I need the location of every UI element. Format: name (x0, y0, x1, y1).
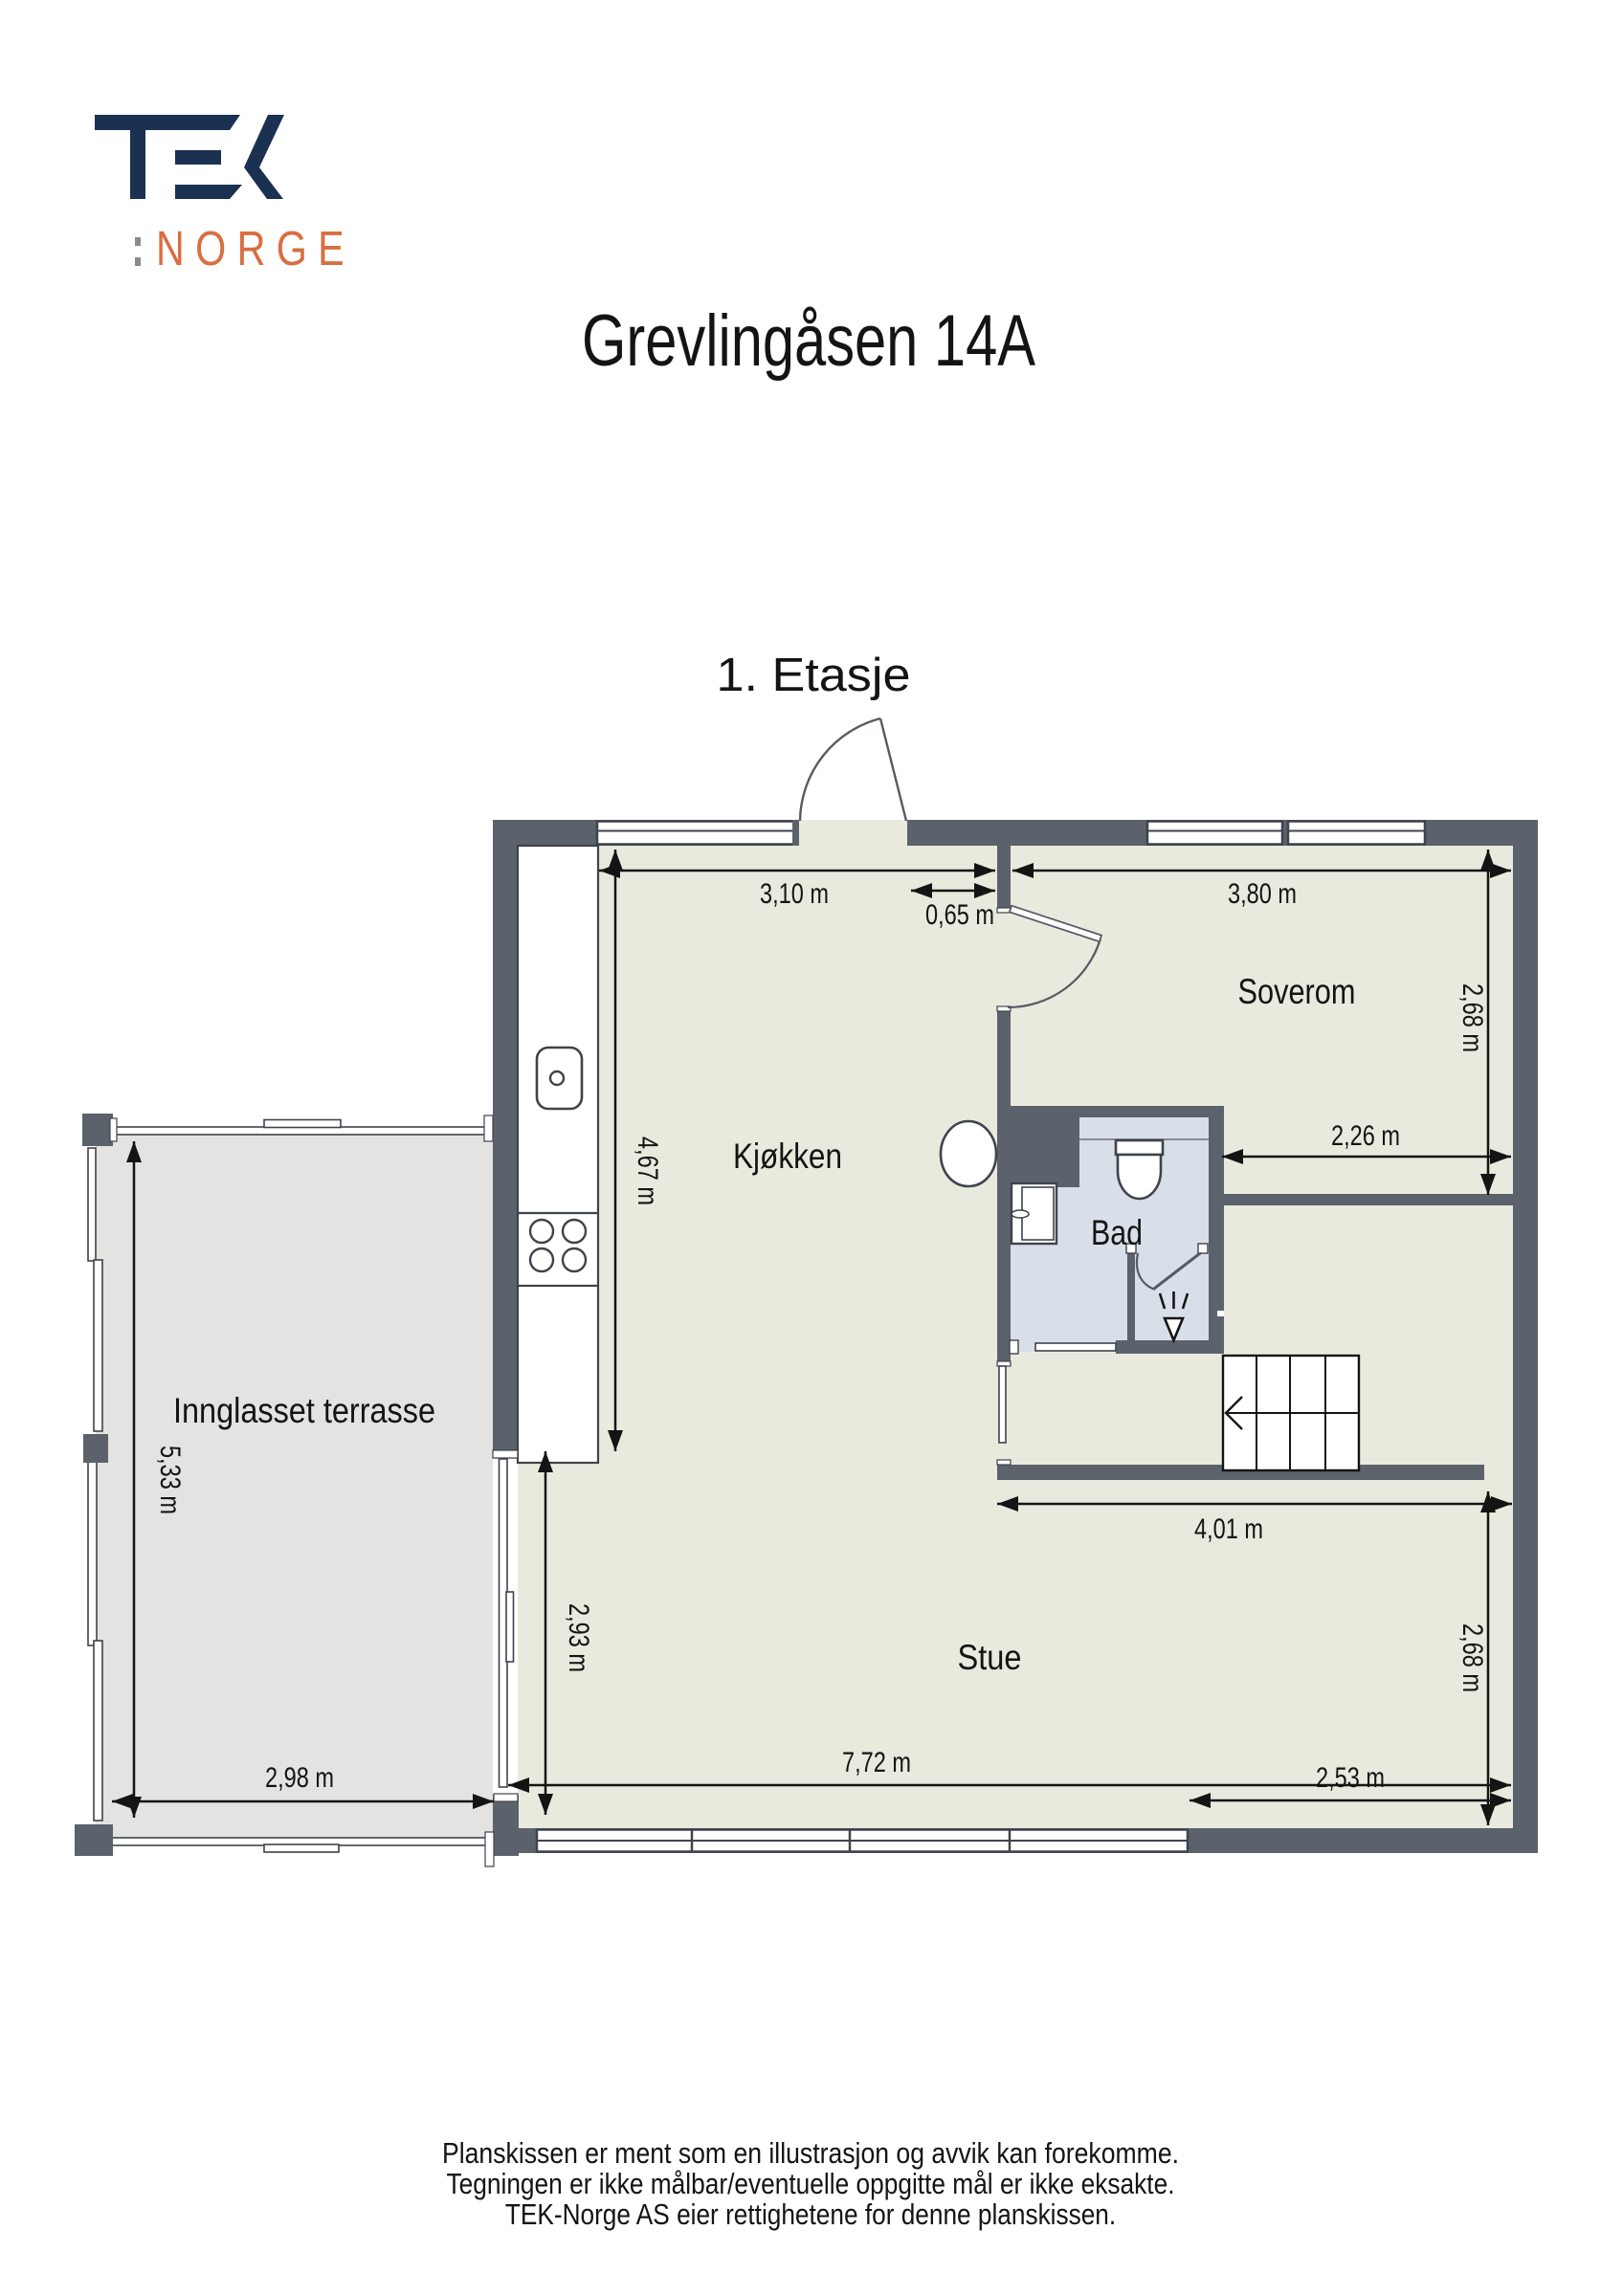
svg-text:Soverom: Soverom (1238, 972, 1356, 1011)
svg-text:4,67 m: 4,67 m (632, 1137, 663, 1205)
svg-text:Kjøkken: Kjøkken (733, 1137, 842, 1176)
svg-text:2,68 m: 2,68 m (1456, 1623, 1488, 1692)
svg-text:2,98 m: 2,98 m (265, 1762, 334, 1794)
svg-text:Grevlingåsen 14A: Grevlingåsen 14A (582, 300, 1035, 382)
svg-text:4,01 m: 4,01 m (1194, 1513, 1263, 1545)
svg-text:3,10 m: 3,10 m (760, 878, 829, 910)
svg-text:Stue: Stue (958, 1638, 1022, 1677)
svg-text:NORGE: NORGE (156, 221, 355, 276)
svg-text:5,33 m: 5,33 m (154, 1446, 186, 1514)
svg-text:2,26 m: 2,26 m (1331, 1120, 1400, 1152)
svg-text:TEK-Norge AS eier rettighetene: TEK-Norge AS eier rettighetene for denne… (505, 2198, 1116, 2232)
svg-text:0,65 m: 0,65 m (925, 899, 994, 931)
svg-text:2,53 m: 2,53 m (1316, 1762, 1385, 1794)
svg-text:Tegningen er ikke målbar/event: Tegningen er ikke målbar/eventuelle oppg… (447, 2167, 1175, 2200)
svg-text:2,68 m: 2,68 m (1456, 983, 1488, 1052)
svg-text:3,80 m: 3,80 m (1228, 878, 1297, 910)
svg-text:Bad: Bad (1091, 1213, 1143, 1252)
svg-text:7,72 m: 7,72 m (842, 1747, 911, 1778)
svg-text:Planskissen er ment som en ill: Planskissen er ment som en illustrasjon … (442, 2136, 1179, 2170)
svg-text:1. Etasje: 1. Etasje (717, 650, 911, 701)
svg-text:Innglasset terrasse: Innglasset terrasse (173, 1391, 435, 1430)
svg-text:2,93 m: 2,93 m (563, 1603, 594, 1672)
